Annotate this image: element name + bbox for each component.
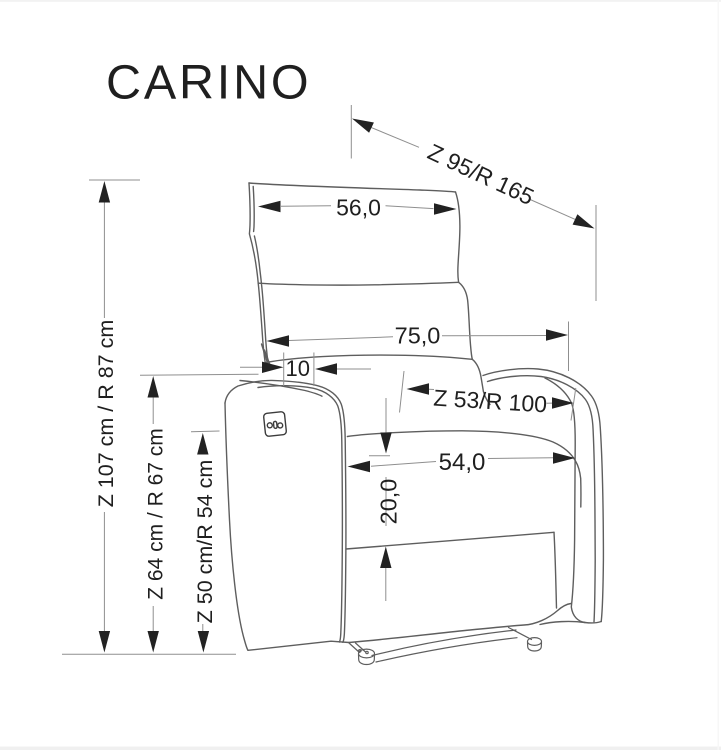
svg-text:Z 64 cm / R 67 cm: Z 64 cm / R 67 cm <box>144 428 167 600</box>
svg-text:10: 10 <box>286 356 310 381</box>
svg-text:Z 50 cm/R 54 cm: Z 50 cm/R 54 cm <box>193 460 217 624</box>
svg-text:54,0: 54,0 <box>439 449 486 476</box>
svg-text:Z 107 cm / R 87 cm: Z 107 cm / R 87 cm <box>94 320 118 508</box>
svg-text:75,0: 75,0 <box>395 323 441 349</box>
svg-text:20,0: 20,0 <box>376 479 402 525</box>
svg-text:56,0: 56,0 <box>336 195 381 221</box>
svg-text:CARINO: CARINO <box>106 56 311 110</box>
